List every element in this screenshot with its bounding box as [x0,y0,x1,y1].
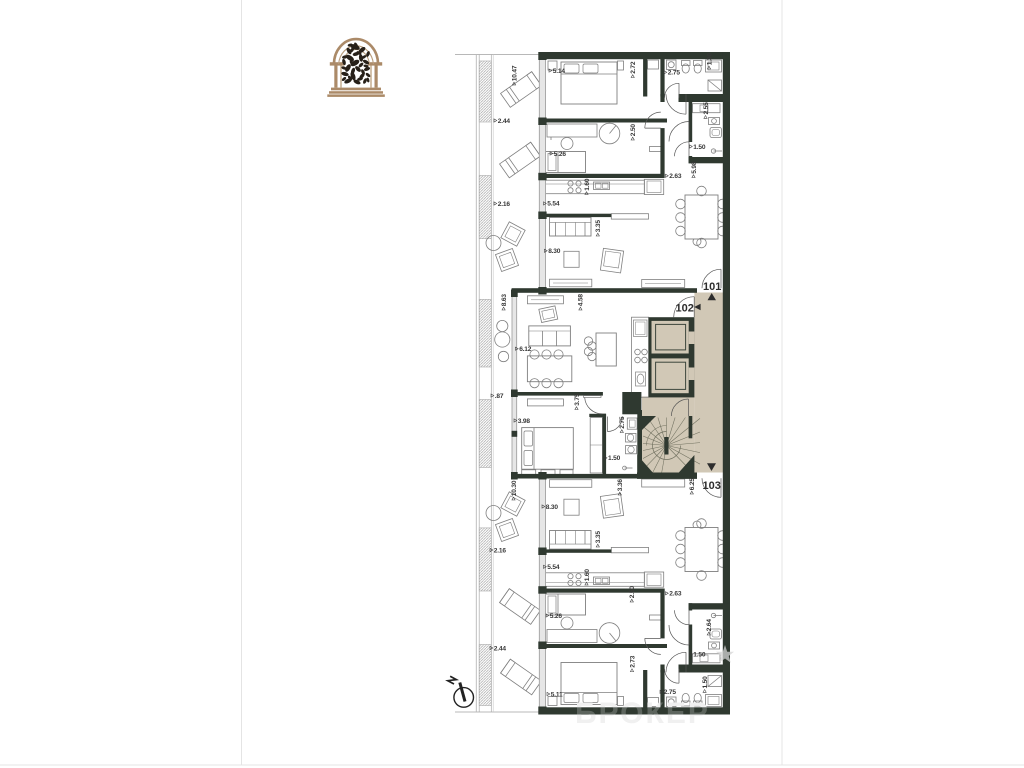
svg-text:2.50: 2.50 [630,124,637,137]
svg-text:БРОКЕР: БРОКЕР [575,697,710,730]
svg-text:3.35: 3.35 [595,531,602,544]
svg-text:3.98: 3.98 [518,418,531,425]
svg-text:1.50: 1.50 [702,676,709,689]
svg-text:3.75: 3.75 [574,393,581,406]
svg-text:2.55: 2.55 [703,102,710,115]
svg-text:5.54: 5.54 [547,564,560,571]
svg-text:1.50: 1.50 [693,144,706,151]
svg-text:1.60: 1.60 [584,178,591,191]
svg-text:2.44: 2.44 [498,118,511,125]
svg-text:1.60: 1.60 [584,569,591,582]
svg-text:.87: .87 [495,393,504,400]
svg-text:5.54: 5.54 [547,201,560,208]
svg-text:2.73: 2.73 [629,655,636,668]
svg-text:101: 101 [703,281,721,293]
svg-text:10.47: 10.47 [511,65,518,81]
svg-text:102: 102 [676,303,694,315]
svg-text:8.30: 8.30 [548,248,561,255]
svg-text:5.98: 5.98 [691,161,698,174]
svg-text:2.44: 2.44 [494,645,507,652]
svg-text:2.75: 2.75 [619,416,626,429]
svg-text:2.72: 2.72 [630,61,637,74]
svg-text:5.26: 5.26 [550,613,563,620]
svg-text:4.58: 4.58 [578,294,585,307]
svg-text:5.11: 5.11 [551,691,563,698]
svg-text:2.50: 2.50 [629,586,636,599]
svg-text:2.75: 2.75 [668,70,681,77]
svg-text:3.36: 3.36 [617,479,624,492]
svg-text:2.63: 2.63 [669,591,682,598]
svg-text:1.30: 1.30 [706,53,713,66]
svg-text:2.75: 2.75 [664,689,677,696]
svg-text:1.50: 1.50 [608,455,621,462]
svg-text:6.12: 6.12 [519,346,532,353]
svg-text:2.64: 2.64 [706,619,713,632]
svg-text:5.14: 5.14 [553,68,566,75]
svg-text:6.25: 6.25 [689,478,696,491]
svg-text:103: 103 [703,480,721,492]
svg-text:2.16: 2.16 [498,201,511,208]
svg-text:2.16: 2.16 [494,547,507,554]
svg-text:8.63: 8.63 [501,294,508,307]
svg-text:1.50: 1.50 [693,651,706,658]
svg-text:10.30: 10.30 [511,480,518,496]
svg-text:3.35: 3.35 [595,220,602,233]
svg-text:5.26: 5.26 [554,151,567,158]
svg-text:8.30: 8.30 [546,504,559,511]
svg-text:2.63: 2.63 [669,173,682,180]
